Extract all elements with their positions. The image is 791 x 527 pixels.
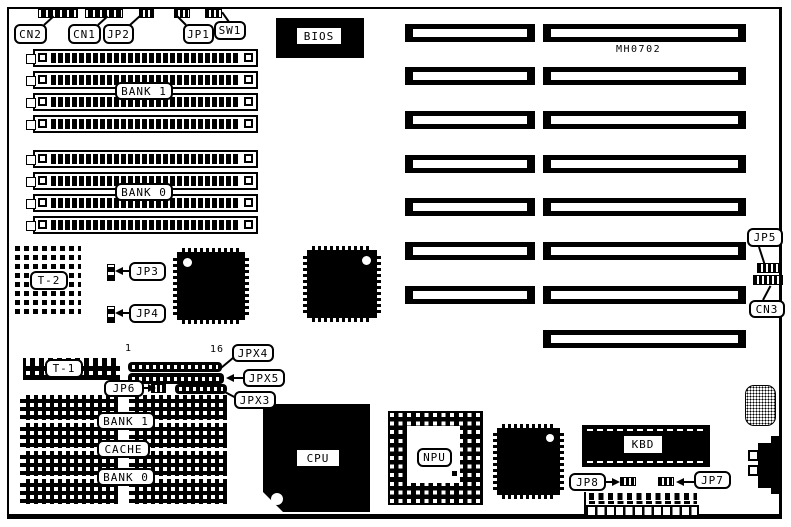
power-pins bbox=[589, 493, 697, 500]
keyboard-din-connector bbox=[745, 385, 776, 426]
t2-label: T-2 bbox=[30, 271, 68, 290]
dip-bank1-label: BANK 1 bbox=[97, 412, 155, 430]
isa-slot-16bit-extension bbox=[405, 242, 535, 260]
callout-jp2: JP2 bbox=[103, 24, 134, 44]
qfp-chip bbox=[307, 250, 377, 318]
qfp-pins bbox=[182, 320, 240, 324]
power-pin-boxes bbox=[586, 505, 699, 517]
simm-pin-contacts bbox=[51, 154, 240, 164]
pin1-dot bbox=[183, 258, 192, 267]
callout-jpx4: JPX4 bbox=[232, 344, 274, 362]
callout-sw1: SW1 bbox=[214, 21, 246, 40]
qfp-pins bbox=[502, 424, 555, 428]
jp8-jumper bbox=[620, 477, 636, 486]
qfp-pins bbox=[377, 255, 381, 313]
board-model-text: MH0702 bbox=[616, 45, 661, 55]
simm-tab bbox=[26, 155, 36, 165]
isa-slot-16bit-extension bbox=[405, 67, 535, 85]
jp5-jumper bbox=[757, 263, 781, 273]
kbd-label: KBD bbox=[624, 436, 662, 453]
isa-slot-8bit bbox=[543, 155, 746, 173]
power-socket-prong bbox=[748, 450, 759, 461]
npu-pin1-dot bbox=[452, 471, 457, 476]
callout-cn1: CN1 bbox=[68, 24, 101, 44]
qfp-pins bbox=[245, 257, 249, 315]
isa-slot-8bit bbox=[543, 242, 746, 260]
simm-tab bbox=[26, 76, 36, 86]
isa-slot-8bit bbox=[543, 330, 746, 348]
simm-bank1-label: BANK 1 bbox=[115, 82, 173, 100]
kbd-bottom-dashes bbox=[587, 461, 705, 463]
simm-tab bbox=[26, 177, 36, 187]
jp2-jumper bbox=[139, 9, 154, 18]
simm-tab bbox=[26, 221, 36, 231]
simm-tab bbox=[26, 98, 36, 108]
qfp-pins bbox=[560, 433, 564, 490]
sw1-switch bbox=[205, 9, 222, 18]
simm-bank0-label: BANK 0 bbox=[115, 183, 173, 201]
power-socket bbox=[758, 443, 782, 488]
qfp-pins bbox=[182, 248, 240, 252]
power-socket-step bbox=[771, 436, 782, 444]
power-pin-dashes bbox=[589, 501, 697, 504]
jpx-pin16-number: 16 bbox=[210, 345, 224, 355]
callout-jp1: JP1 bbox=[183, 24, 214, 44]
isa-slot-8bit bbox=[543, 67, 746, 85]
kbd-top-dashes bbox=[587, 429, 705, 431]
callout-jp8: JP8 bbox=[569, 473, 606, 491]
header-pins bbox=[179, 387, 223, 391]
qfp-pins bbox=[493, 433, 497, 490]
jpx4-header bbox=[128, 362, 222, 372]
pin1-dot bbox=[362, 256, 371, 265]
header-pins bbox=[132, 365, 218, 369]
simm-pin-contacts bbox=[51, 220, 240, 230]
callout-jp6: JP6 bbox=[104, 380, 144, 397]
cn3-connector bbox=[753, 275, 783, 285]
isa-slot-16bit-extension bbox=[405, 198, 535, 216]
qfp-chip bbox=[177, 252, 245, 320]
qfp-pins bbox=[173, 257, 177, 315]
callout-cn2: CN2 bbox=[14, 24, 47, 44]
jpx-pin1-number: 1 bbox=[125, 344, 132, 354]
jp6-arrowhead bbox=[148, 384, 156, 392]
cpu-pin1-dot bbox=[271, 493, 283, 505]
jpx3-header bbox=[175, 384, 227, 394]
power-header bbox=[584, 492, 699, 517]
isa-slot-8bit bbox=[543, 24, 746, 42]
bios-label: BIOS bbox=[297, 28, 341, 44]
simm-slot bbox=[33, 49, 258, 67]
qfp-pins bbox=[312, 246, 372, 250]
callout-jpx3: JPX3 bbox=[234, 391, 276, 409]
power-socket-prong bbox=[748, 465, 759, 476]
qfp-chip bbox=[497, 428, 560, 495]
cpu-label: CPU bbox=[297, 450, 339, 466]
simm-pin-contacts bbox=[51, 53, 240, 63]
t1-label: T-1 bbox=[45, 359, 83, 378]
jp8-arrowhead bbox=[612, 478, 620, 486]
simm-tab bbox=[26, 199, 36, 209]
pin1-dot bbox=[546, 434, 554, 442]
isa-slot-8bit bbox=[543, 111, 746, 129]
jp4-jumper bbox=[107, 306, 115, 323]
callout-jp4: JP4 bbox=[129, 304, 166, 323]
simm-tab bbox=[26, 120, 36, 130]
isa-slot-16bit-extension bbox=[405, 24, 535, 42]
callout-jp7: JP7 bbox=[694, 471, 731, 489]
isa-slot-16bit-extension bbox=[405, 286, 535, 304]
isa-slot-16bit-extension bbox=[405, 111, 535, 129]
simm-pin-contacts bbox=[51, 119, 240, 129]
simm-slot bbox=[33, 115, 258, 133]
callout-jpx5: JPX5 bbox=[243, 369, 285, 387]
isa-slot-8bit bbox=[543, 198, 746, 216]
npu-label: NPU bbox=[417, 448, 452, 467]
callout-jp5: JP5 bbox=[747, 228, 783, 247]
isa-slot-16bit-extension bbox=[405, 155, 535, 173]
cache-label: CACHE bbox=[97, 440, 150, 458]
power-socket-step bbox=[771, 487, 782, 494]
cn2-connector bbox=[38, 9, 78, 18]
qfp-pins bbox=[303, 255, 307, 313]
motherboard-layout-diagram: CN2 CN1 JP2 JP1 SW1 BIOS BANK 1 BANK 0 M… bbox=[0, 0, 791, 527]
header-pins bbox=[132, 377, 220, 381]
qfp-pins bbox=[502, 495, 555, 499]
jp3-jumper bbox=[107, 264, 115, 281]
dip-bank0-label: BANK 0 bbox=[97, 468, 155, 486]
simm-slot bbox=[33, 150, 258, 168]
callout-jp3: JP3 bbox=[129, 262, 166, 281]
qfp-pins bbox=[312, 318, 372, 322]
simm-slot bbox=[33, 216, 258, 234]
isa-slot-8bit bbox=[543, 286, 746, 304]
callout-cn3: CN3 bbox=[749, 300, 785, 318]
jp7-jumper bbox=[658, 477, 674, 486]
simm-tab bbox=[26, 54, 36, 64]
